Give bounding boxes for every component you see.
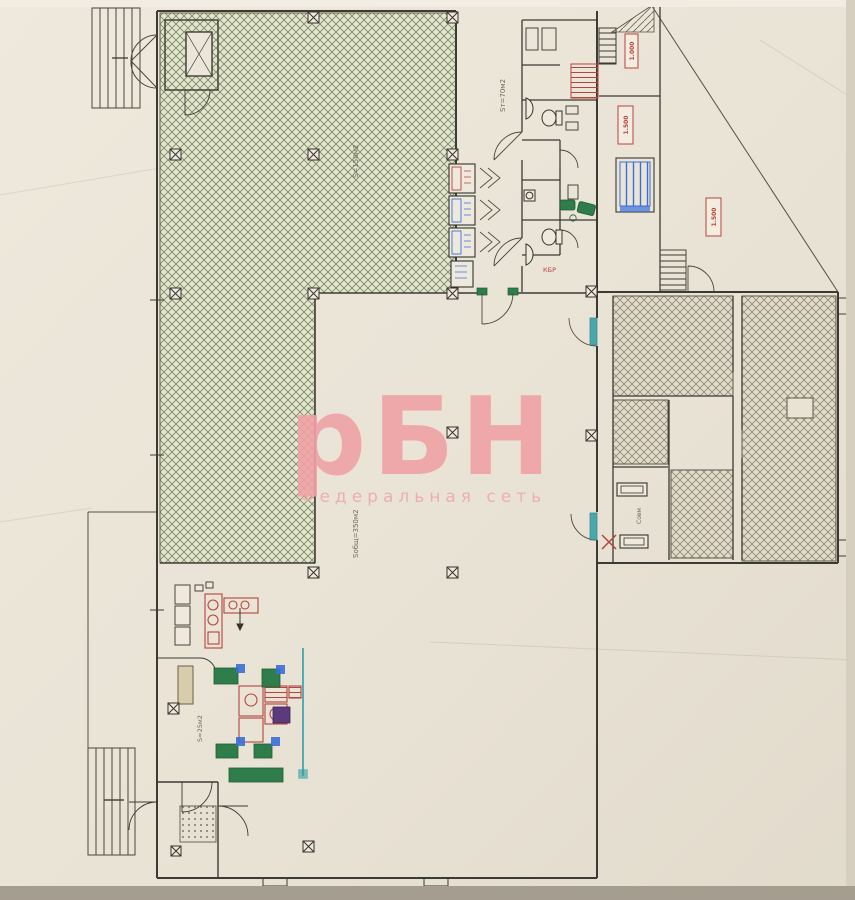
wc-room-label: Совм (636, 508, 643, 524)
elevation-value: 1.500 (711, 208, 718, 227)
stair-flight (599, 28, 616, 64)
elevation-value: 1.500 (623, 116, 630, 135)
display-cases (449, 164, 475, 287)
trade-area-label: Sт=70м2 (499, 79, 507, 112)
watermark-subtitle: Федеральная сеть (300, 487, 546, 507)
floor-plan-drawing: 1.000 1.500 1.500 S=150м2 Sт=70м2 Sобщ=3… (0, 0, 855, 900)
storage-area-label: Sобщ=350м2 (352, 509, 360, 558)
purple-equipment (273, 707, 290, 723)
scan-shadow-bottom (0, 886, 855, 900)
kitchen-area-label: S=25м2 (196, 715, 204, 742)
paper-edge-top (0, 0, 855, 7)
kbr-label: КБР (543, 266, 556, 274)
tall-cabinet (178, 666, 193, 704)
paper-edge-right (846, 0, 855, 900)
blue-staircase (616, 158, 654, 212)
red-hatched-stair (571, 64, 598, 98)
hall-area-label: S=150м2 (352, 145, 360, 178)
scanned-floor-plan: 1.000 1.500 1.500 S=150м2 Sт=70м2 Sобщ=3… (0, 0, 855, 900)
watermark: рБН Федеральная сеть (289, 375, 557, 507)
elevation-value: 1.000 (629, 42, 636, 61)
watermark-title: рБН (289, 375, 557, 500)
